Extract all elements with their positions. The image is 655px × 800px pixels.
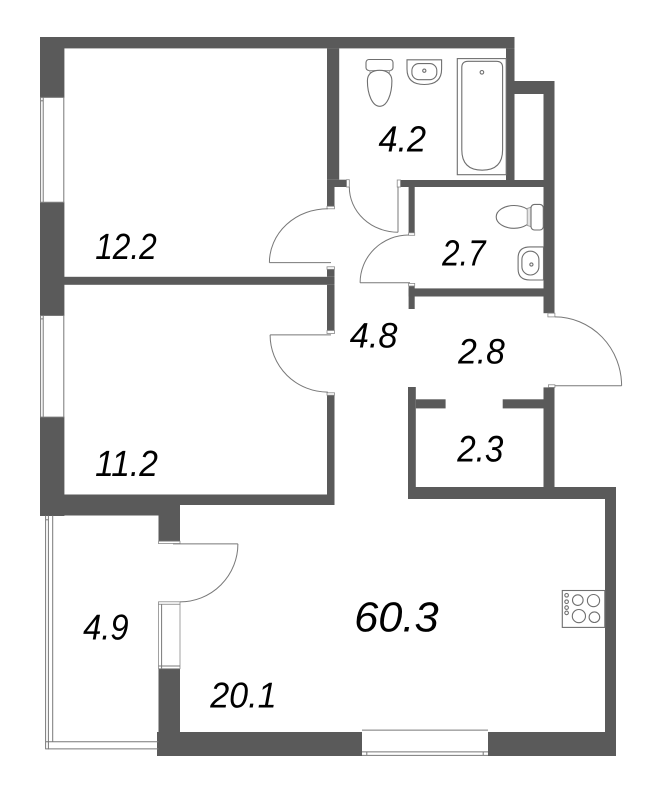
svg-text:60.3: 60.3 [354, 593, 439, 640]
svg-text:2.7: 2.7 [441, 232, 487, 273]
svg-text:2.3: 2.3 [456, 429, 503, 470]
svg-text:4.2: 4.2 [379, 119, 427, 160]
svg-text:4.9: 4.9 [83, 606, 129, 647]
svg-text:4.8: 4.8 [350, 315, 398, 355]
svg-text:12.2: 12.2 [95, 226, 157, 267]
svg-text:2.8: 2.8 [457, 331, 505, 371]
svg-text:20.1: 20.1 [209, 675, 276, 716]
svg-text:11.2: 11.2 [95, 443, 158, 484]
